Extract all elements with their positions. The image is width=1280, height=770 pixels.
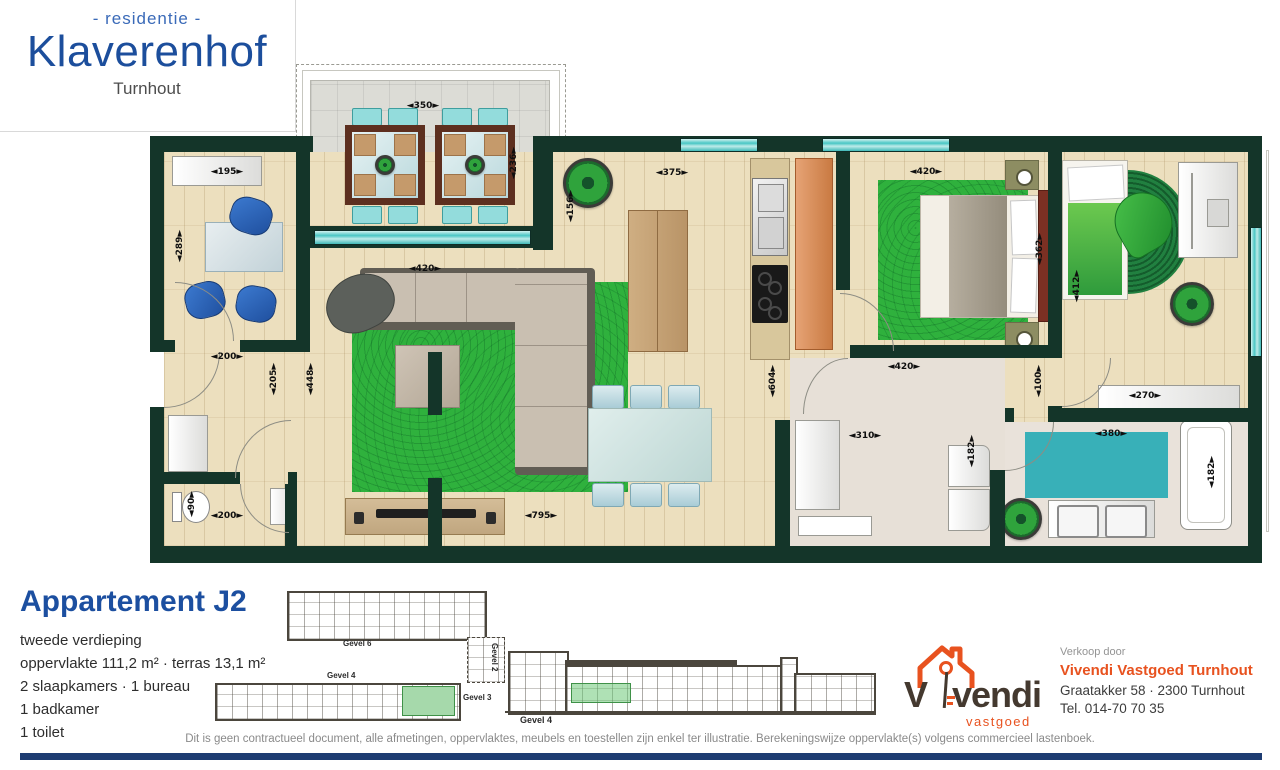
elevation-label: Gevel 4 <box>520 715 552 725</box>
elevation-drawing: Gevel 4 <box>505 643 880 733</box>
pillow <box>1010 200 1038 256</box>
pillow <box>1067 165 1125 202</box>
floor-plan: ◄350► ◄236► ◄195► ◄289► ◄375► ◄156► ◄420… <box>150 60 1268 572</box>
hall-cabinet <box>168 415 208 472</box>
elevation-block-left <box>508 651 569 715</box>
elevation-highlight-unit <box>571 683 631 703</box>
sink <box>1105 505 1147 538</box>
laundry-cabinet <box>795 420 840 510</box>
dim-label: ◄350► <box>407 101 440 111</box>
wall <box>150 136 313 152</box>
sofa-cushions <box>515 273 587 467</box>
bedroom2-window <box>1250 227 1262 357</box>
bedroom1-window <box>822 138 950 152</box>
dim-label: ◄380► <box>1095 429 1128 439</box>
wall <box>164 340 175 352</box>
page: ◄350► ◄236► ◄195► ◄289► ◄375► ◄156► ◄420… <box>0 0 1280 770</box>
dining-chair <box>630 385 662 409</box>
vivendi-logo: V vendi vastgoed <box>898 640 1056 736</box>
table-plant <box>375 155 395 175</box>
bathtub <box>1180 420 1232 530</box>
right-awning-line <box>1266 150 1269 532</box>
dim-label: ◄795► <box>525 511 558 521</box>
seat-cushion <box>484 134 506 156</box>
tv-sideboard <box>345 498 505 535</box>
bathroom-vanity <box>1048 500 1155 538</box>
apartment-title: Appartement J2 <box>20 585 265 619</box>
wall <box>775 420 790 546</box>
dim-label: ◄448► <box>306 363 316 396</box>
wall <box>836 152 850 290</box>
seat-cushion <box>484 174 506 196</box>
dim-label: ◄236► <box>509 147 519 180</box>
wall <box>1005 408 1014 422</box>
dim-label: ◄195► <box>211 167 244 177</box>
dim-label: ◄412► <box>1072 270 1082 303</box>
wall <box>1048 152 1062 358</box>
terrace-chair <box>442 206 472 224</box>
wall <box>428 478 442 546</box>
dim-label: ◄182► <box>967 435 977 468</box>
wall <box>150 136 164 352</box>
dim-label: ◄90► <box>187 491 197 517</box>
footer-bar <box>20 753 1262 760</box>
dim-label: ◄420► <box>910 167 943 177</box>
apartment-bathroom: 1 badkamer <box>20 698 265 721</box>
speaker <box>486 512 496 524</box>
dining-chair <box>592 385 624 409</box>
dim-label: ◄375► <box>656 168 689 178</box>
wall <box>428 352 442 415</box>
brand-name: Klaverenhof <box>0 29 295 75</box>
seat-cushion <box>444 174 466 196</box>
terrace-chair <box>478 206 508 224</box>
dim-label: ◄200► <box>211 511 244 521</box>
wall <box>164 472 240 484</box>
nightstand <box>1005 160 1039 190</box>
dim-label: ◄362► <box>1035 233 1045 266</box>
sink <box>1057 505 1099 538</box>
dim-label: ◄604► <box>768 365 778 398</box>
dim-label: ◄289► <box>175 230 185 263</box>
kitchen-tall-cabinet <box>795 158 833 350</box>
seat-cushion <box>354 134 376 156</box>
site-label-gevel6: Gevel 6 <box>343 639 371 648</box>
dim-label: ◄420► <box>409 264 442 274</box>
site-wing-top <box>287 591 487 641</box>
seat-cushion <box>394 174 416 196</box>
dining-chair <box>668 385 700 409</box>
bedroom2-plant <box>1170 282 1214 326</box>
tall-sideboard <box>628 210 688 352</box>
wall <box>533 136 553 250</box>
site-label-gevel2: Gevel 2 <box>490 643 499 671</box>
terrace-table <box>435 125 515 205</box>
double-bed <box>920 195 1040 318</box>
dim-label: ◄182► <box>1207 456 1217 489</box>
apartment-rooms: 2 slaapkamers · 1 bureau <box>20 675 265 698</box>
dining-chair <box>668 483 700 507</box>
desk-laptop <box>1207 199 1229 227</box>
kitchen-sink <box>752 178 788 256</box>
dining-table <box>588 408 712 482</box>
lamp <box>1016 169 1033 186</box>
terrace-table <box>345 125 425 205</box>
site-label-gevel3: Gevel 3 <box>463 693 491 702</box>
doormat <box>798 516 872 536</box>
wall <box>150 546 1262 563</box>
wall <box>150 407 164 563</box>
sink-basin <box>758 217 784 249</box>
brand-residentie: - residentie - <box>0 9 295 29</box>
bathtub-inner <box>1187 427 1225 523</box>
cooktop <box>752 265 788 323</box>
burner <box>768 281 782 295</box>
toilet-tank <box>172 492 182 522</box>
table-plant <box>465 155 485 175</box>
sofa-side-section <box>515 268 595 475</box>
vendor-address: Graatakker 58 · 2300 Turnhout <box>1060 682 1253 700</box>
dining-chair <box>630 483 662 507</box>
wall <box>990 470 1005 546</box>
disclaimer-text: Dit is geen contractueel document, alle … <box>0 733 1280 745</box>
apartment-info: Appartement J2 tweede verdieping oppervl… <box>20 585 265 744</box>
vendor-verkoop-door: Verkoop door <box>1060 646 1253 658</box>
terrace-chair <box>352 108 382 126</box>
logo-text-v: V <box>904 674 927 716</box>
elevation-ground-line <box>505 711 875 713</box>
dryer <box>948 489 990 531</box>
wall <box>296 136 310 352</box>
dim-label: ◄270► <box>1129 391 1162 401</box>
sink-basin <box>758 184 784 212</box>
vendor-phone: Tel. 014-70 70 35 <box>1060 700 1253 718</box>
elevation-block-right <box>794 673 876 715</box>
living-window <box>680 138 758 152</box>
sideboard-divider <box>657 211 658 351</box>
site-label-gevel4: Gevel 4 <box>327 671 355 680</box>
seat-cushion <box>394 134 416 156</box>
vendor-name: Vivendi Vastgoed Turnhout <box>1060 662 1253 679</box>
dining-chair <box>592 483 624 507</box>
terrace-chair <box>352 206 382 224</box>
logo-text-vendi: vendi <box>952 674 1041 716</box>
wall <box>1062 408 1248 422</box>
dim-label: ◄420► <box>888 362 921 372</box>
terrace-chair <box>478 108 508 126</box>
brand-card: - residentie - Klaverenhof Turnhout <box>0 0 296 132</box>
dim-label: ◄310► <box>849 431 882 441</box>
apartment-area: oppervlakte 111,2 m² · terras 13,1 m² <box>20 652 265 675</box>
seat-cushion <box>444 134 466 156</box>
brand-city: Turnhout <box>0 79 295 99</box>
site-connector <box>467 637 505 683</box>
terrace-chair <box>442 108 472 126</box>
wall <box>1048 406 1062 422</box>
bedroom2-desk <box>1178 162 1238 258</box>
desk-edge <box>1191 173 1193 249</box>
bed-blanket <box>949 196 1007 317</box>
terrace-chair <box>388 206 418 224</box>
dim-label: ◄200► <box>211 352 244 362</box>
bathroom-plant <box>1000 498 1042 540</box>
dim-label: ◄100► <box>1034 365 1044 398</box>
dim-label: ◄205► <box>269 363 279 396</box>
vendor-info: Verkoop door Vivendi Vastgoed Turnhout G… <box>1060 646 1253 718</box>
speaker <box>354 512 364 524</box>
tv-screen <box>376 509 476 518</box>
dim-label: ◄156► <box>566 190 576 223</box>
pillow <box>1010 258 1038 314</box>
wall <box>240 340 310 352</box>
terrace-sliding-window <box>314 230 531 245</box>
burner <box>768 306 782 320</box>
logo-text-vastgoed: vastgoed <box>966 714 1031 729</box>
seat-cushion <box>354 174 376 196</box>
apartment-floor: tweede verdieping <box>20 629 265 652</box>
site-highlight-unit <box>402 686 455 716</box>
